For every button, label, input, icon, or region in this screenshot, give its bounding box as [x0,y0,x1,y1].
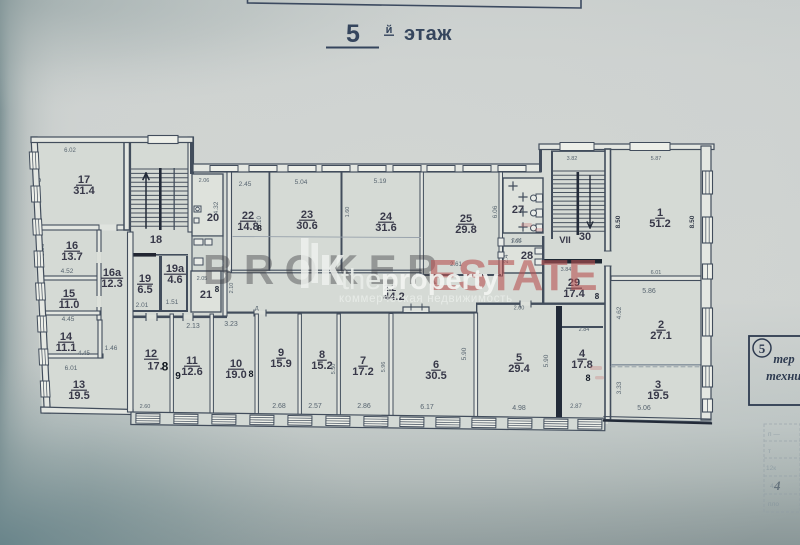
svg-text:8: 8 [248,369,253,379]
svg-text:4.6: 4.6 [167,274,182,286]
svg-text:тер: тер [773,352,794,366]
svg-text:8: 8 [162,360,169,374]
svg-text:17.2: 17.2 [352,366,373,378]
svg-text:31.4: 31.4 [73,185,95,197]
svg-text:11.1: 11.1 [56,342,77,354]
svg-text:30.5: 30.5 [425,370,446,382]
svg-text:30: 30 [579,231,591,243]
svg-text:2.84: 2.84 [579,327,590,333]
svg-text:14.8: 14.8 [237,221,258,233]
svg-text:5.04: 5.04 [295,179,308,186]
svg-text:2.00: 2.00 [514,306,525,312]
svg-text:5.90: 5.90 [543,354,550,367]
svg-text:2.06: 2.06 [199,178,210,184]
svg-text:п —: п — [768,431,780,438]
svg-text:1.46: 1.46 [105,345,118,352]
svg-text:the: the [341,264,381,296]
svg-text:31.6: 31.6 [375,222,396,234]
svg-text:1.60: 1.60 [345,207,351,218]
svg-text:5.19: 5.19 [374,178,387,185]
svg-text:д: д [255,306,259,312]
svg-text:5.90: 5.90 [461,347,468,360]
svg-text:6.02: 6.02 [64,148,76,154]
svg-text:5.50: 5.50 [331,364,337,375]
svg-text:5.87: 5.87 [651,156,662,162]
svg-text:технич: технич [766,369,800,383]
svg-text:19.5: 19.5 [68,390,89,402]
svg-text:19.0: 19.0 [225,369,246,381]
svg-text:18: 18 [150,234,162,246]
svg-text:5.86: 5.86 [642,288,656,295]
svg-text:коммерческая недвижимость: коммерческая недвижимость [339,293,513,305]
svg-text:VII: VII [559,235,571,246]
svg-text:4.32: 4.32 [213,201,220,214]
svg-text:6.06: 6.06 [492,205,499,218]
svg-text:4.52: 4.52 [61,268,74,275]
svg-text:12: 12 [145,348,157,360]
svg-text:2.86: 2.86 [357,403,371,410]
svg-text:6.5: 6.5 [137,284,152,296]
svg-text:8.50: 8.50 [615,215,622,228]
svg-text:4: 4 [773,478,781,493]
svg-text:1.01: 1.01 [511,239,522,245]
svg-text:12.6: 12.6 [181,366,202,378]
svg-text:й: й [386,24,393,36]
svg-text:9: 9 [175,371,181,382]
svg-text:8.50: 8.50 [689,215,696,228]
svg-text:12.3: 12.3 [101,278,122,290]
svg-text:5: 5 [759,341,766,356]
svg-text:19.5: 19.5 [647,390,668,402]
svg-text:1.51: 1.51 [166,299,179,306]
svg-text:5: 5 [346,20,360,48]
svg-text:6.17: 6.17 [420,404,434,411]
svg-text:2.01: 2.01 [136,302,149,309]
svg-text:6.01: 6.01 [651,270,662,276]
svg-text:51.2: 51.2 [649,218,670,230]
svg-text:29.8: 29.8 [455,224,476,236]
svg-text:29.4: 29.4 [508,363,530,375]
svg-text:15.9: 15.9 [270,358,291,370]
svg-text:8: 8 [585,373,590,383]
svg-text:4.62: 4.62 [616,306,623,319]
svg-text:27: 27 [512,204,524,216]
svg-text:8: 8 [257,223,262,233]
svg-text:4.45: 4.45 [78,351,90,357]
svg-text:5.06: 5.06 [637,405,651,412]
svg-text:30.6: 30.6 [296,220,317,232]
svg-text:17.8: 17.8 [571,359,592,371]
svg-text:6.01: 6.01 [65,365,78,372]
svg-text:этаж: этаж [404,23,452,45]
svg-text:т: т [768,448,771,455]
svg-text:15.2: 15.2 [311,360,332,372]
svg-text:12к: 12к [766,465,776,472]
svg-text:2.60: 2.60 [140,404,151,410]
svg-text:3.33: 3.33 [616,381,623,394]
svg-text:пло: пло [768,501,779,508]
svg-text:11.0: 11.0 [59,299,80,311]
svg-text:17.: 17. [147,361,162,373]
svg-text:4.45: 4.45 [62,316,75,323]
svg-text:2.68: 2.68 [272,403,286,410]
svg-text:2.13: 2.13 [186,323,200,330]
svg-text:27.1: 27.1 [650,330,671,342]
svg-text:2.87: 2.87 [570,404,582,410]
svg-text:13.7: 13.7 [61,251,82,263]
svg-text:5.96: 5.96 [381,362,387,373]
svg-text:2.45: 2.45 [239,181,252,188]
svg-text:3.23: 3.23 [224,321,238,328]
svg-text:property: property [381,264,499,296]
svg-text:2.57: 2.57 [308,403,322,410]
svg-text:3.82: 3.82 [567,156,578,162]
svg-text:4.98: 4.98 [512,405,526,412]
